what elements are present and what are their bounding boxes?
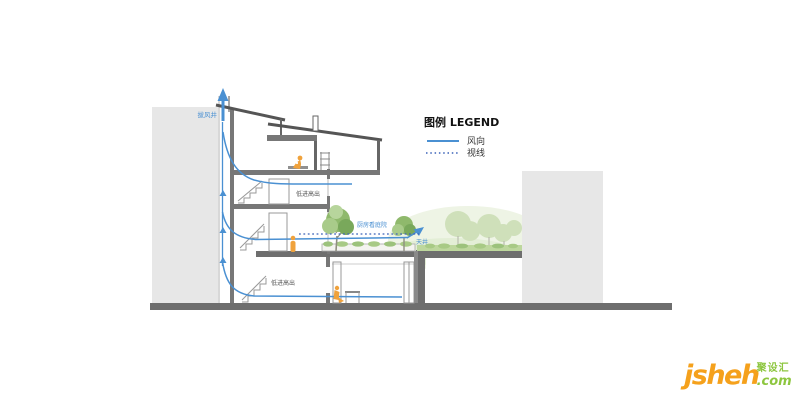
- lower-vent-label: 低进高出: [271, 279, 295, 287]
- legend-title: 图例 LEGEND: [424, 115, 499, 129]
- ground-line: [150, 303, 672, 310]
- legend-wind-label: 风向: [467, 135, 485, 147]
- legend: 图例 LEGEND 风向 视线: [424, 115, 499, 159]
- raised-ground: [416, 243, 522, 303]
- lightwell-label: 天井: [416, 238, 428, 246]
- wind-exit-arrowhead: [218, 88, 229, 101]
- kitchen-sightline-label: 厨房看庭院: [357, 221, 387, 229]
- right-neighbor-building: [522, 171, 603, 304]
- person-kitchen: [291, 236, 296, 252]
- watermark: jsheh 聚设汇 .com: [684, 362, 800, 389]
- left-neighbor-building: [152, 107, 218, 304]
- section-diagram: 拔风井 低进高出 低进高出 厨房看庭院 天井 图例 LEGEND 风向 视线 j…: [0, 0, 800, 400]
- lower-house: [330, 251, 418, 303]
- wind-shaft-label: 拔风井: [198, 110, 218, 119]
- watermark-tld: .com: [757, 375, 792, 388]
- watermark-brand: jsheh: [684, 362, 759, 389]
- legend-sight-label: 视线: [467, 147, 485, 159]
- watermark-brand-cn: 聚设汇: [757, 364, 792, 374]
- upper-vent-label: 低进高出: [296, 190, 320, 198]
- section-drawing: 拔风井 低进高出 低进高出 厨房看庭院 天井 图例 LEGEND 风向 视线: [0, 0, 800, 400]
